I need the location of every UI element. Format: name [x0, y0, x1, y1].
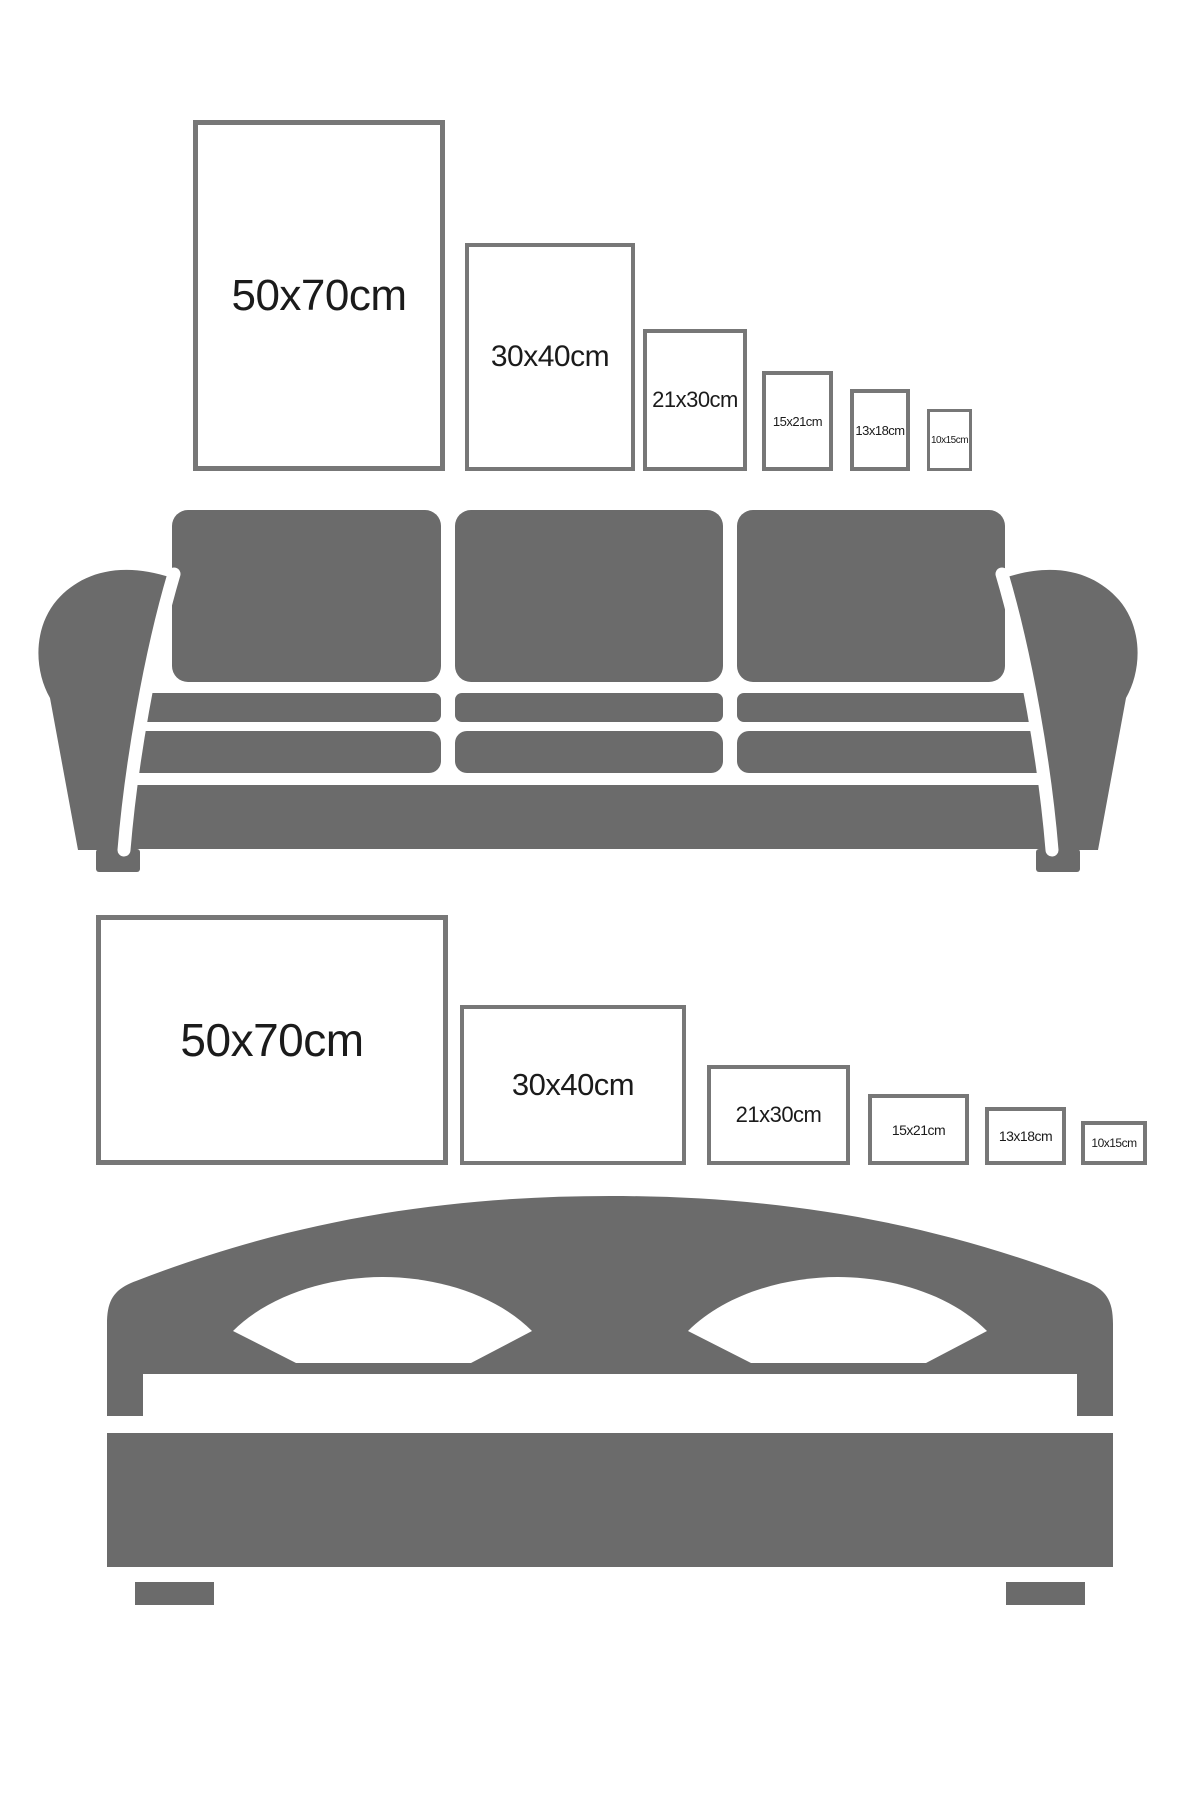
- poster-frame-portrait-21x30: 21x30cm: [643, 329, 747, 471]
- poster-frame-landscape-50x70: 50x70cm: [96, 915, 448, 1165]
- frame-size-label: 15x21cm: [892, 1122, 945, 1138]
- sofa-seat-band: [122, 693, 441, 722]
- bed-leg-left: [135, 1582, 214, 1605]
- frame-size-label: 13x18cm: [855, 423, 904, 438]
- frame-size-label: 10x15cm: [931, 435, 968, 446]
- poster-frame-portrait-10x15: 10x15cm: [927, 409, 972, 471]
- sofa-seat-band: [455, 693, 723, 722]
- sofa-back-cushion-middle: [455, 510, 723, 682]
- frame-size-label: 30x40cm: [512, 1067, 634, 1103]
- bed-illustration: [0, 1190, 1200, 1620]
- bed-body: [107, 1196, 1113, 1605]
- poster-frame-portrait-30x40: 30x40cm: [465, 243, 635, 471]
- sofa-seat-band: [737, 693, 1054, 722]
- bed-headboard: [107, 1196, 1113, 1416]
- frame-size-label: 30x40cm: [491, 340, 609, 374]
- frame-size-label: 50x70cm: [231, 271, 406, 321]
- poster-frame-landscape-21x30: 21x30cm: [707, 1065, 850, 1165]
- poster-frame-landscape-13x18: 13x18cm: [985, 1107, 1066, 1165]
- poster-frame-landscape-30x40: 30x40cm: [460, 1005, 686, 1165]
- sofa-body: [38, 510, 1137, 872]
- poster-frame-portrait-50x70: 50x70cm: [193, 120, 445, 471]
- size-guide-illustration: 50x70cm 30x40cm 21x30cm 15x21cm 13x18cm …: [0, 0, 1200, 1800]
- sofa-back-cushion-right: [737, 510, 1005, 682]
- poster-frame-portrait-13x18: 13x18cm: [850, 389, 910, 471]
- sofa-base: [95, 785, 1081, 849]
- sofa-seat-cushion: [115, 731, 441, 773]
- bed-leg-right: [1006, 1582, 1085, 1605]
- sofa-seat-cushion: [737, 731, 1061, 773]
- sofa-back-cushion-left: [172, 510, 441, 682]
- sofa-illustration: [0, 470, 1200, 900]
- frame-size-label: 21x30cm: [736, 1102, 822, 1128]
- poster-frame-portrait-15x21: 15x21cm: [762, 371, 833, 471]
- frame-size-label: 15x21cm: [773, 414, 822, 429]
- bed-base: [107, 1433, 1113, 1567]
- poster-frame-landscape-15x21: 15x21cm: [868, 1094, 969, 1165]
- frame-size-label: 21x30cm: [652, 387, 738, 413]
- poster-frame-landscape-10x15: 10x15cm: [1081, 1121, 1147, 1165]
- frame-size-label: 50x70cm: [180, 1013, 363, 1067]
- sofa-seat-cushion: [455, 731, 723, 773]
- frame-size-label: 10x15cm: [1091, 1136, 1136, 1150]
- frame-size-label: 13x18cm: [999, 1128, 1052, 1144]
